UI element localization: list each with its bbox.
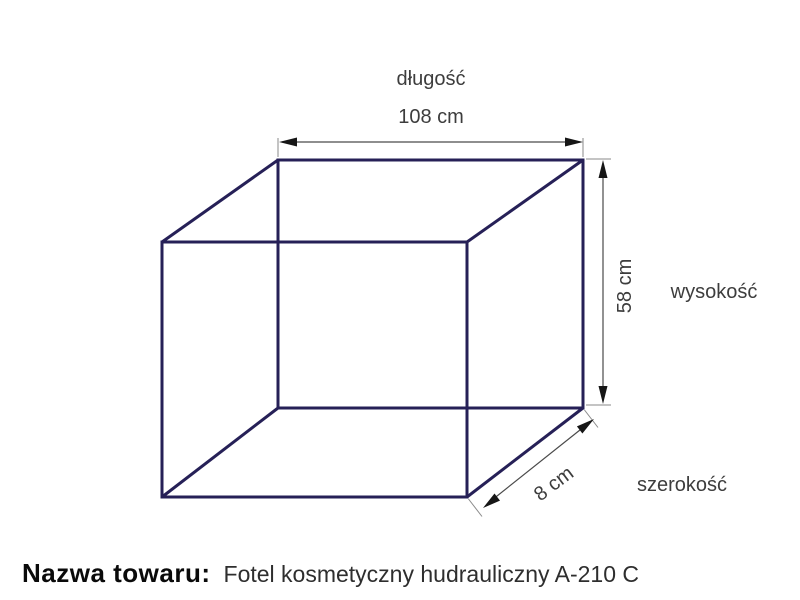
product-name-label: Nazwa towaru: [22, 558, 211, 589]
width-dimension [469, 410, 599, 517]
length-dimension [278, 138, 583, 158]
arrow-up-icon [599, 160, 608, 178]
height-dimension [586, 159, 611, 405]
product-name-row: Nazwa towaru: Fotel kosmetyczny hudrauli… [22, 558, 639, 589]
arrow-left-icon [279, 138, 297, 147]
box-edge-bottom-left [162, 408, 278, 497]
length-label: długość [331, 68, 531, 90]
width-label: szerokość [582, 474, 782, 496]
length-value: 108 cm [331, 106, 531, 128]
box-front-face [162, 242, 467, 497]
cuboid-wireframe [162, 160, 583, 497]
width-extension-bottom [469, 499, 483, 517]
height-label: wysokość [614, 281, 800, 303]
box-back-face [278, 160, 583, 408]
box-edge-top-left [162, 160, 278, 242]
arrow-upright-icon [577, 419, 594, 434]
product-dimension-diagram: długość 108 cm 58 cm wysokość 8 cm szero… [0, 0, 800, 600]
product-name-value: Fotel kosmetyczny hudrauliczny A-210 C [224, 561, 639, 588]
arrow-right-icon [565, 138, 583, 147]
box-edge-top-right [467, 160, 583, 242]
arrow-down-icon [599, 386, 608, 404]
